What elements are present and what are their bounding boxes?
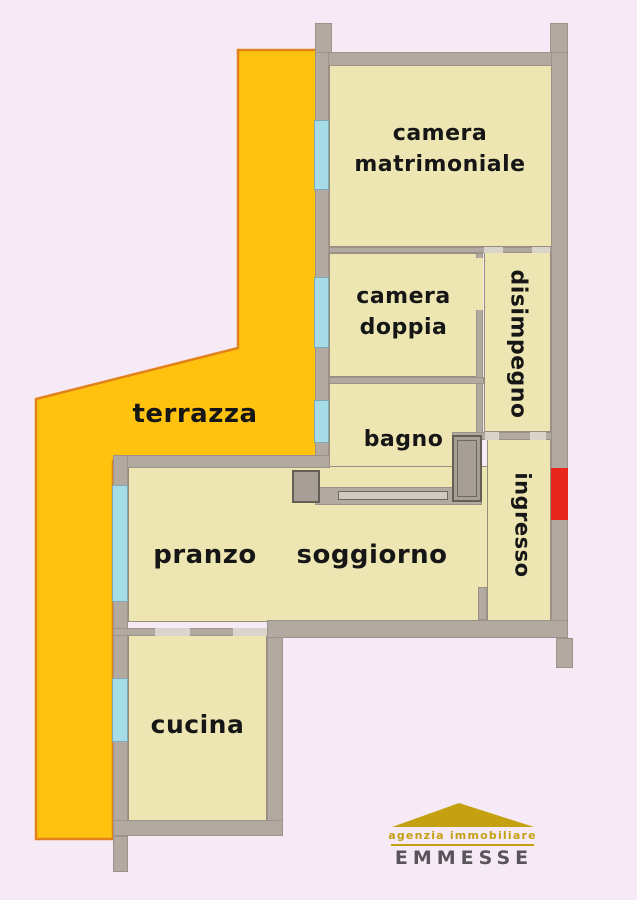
logo-tagline: agenzia immobiliare [385,829,540,842]
door-opening [532,247,550,253]
wall-segment [550,23,568,53]
logo-roof-shape [392,803,534,827]
label-line: matrimoniale [320,149,560,180]
pillar-block [292,470,320,503]
door-opening [485,432,499,440]
window-camera-doppia [314,277,329,348]
label-line: doppia [329,312,478,343]
room-label-cucina: cucina [128,710,267,739]
room-label-camera-doppia: camera doppia [329,281,478,343]
window-bagno [314,400,329,443]
wall-segment [329,247,552,253]
label-line: camera [320,118,560,149]
wall-segment [315,52,568,66]
sliding-door-niche [338,491,448,500]
room-label-pranzo: pranzo [130,540,280,570]
room-label-bagno: bagno [329,424,478,455]
entrance-door-marker [551,468,568,520]
room-label-disimpegno: disimpegno [503,269,534,418]
floor-plan: camera matrimoniale camera doppia disimp… [0,0,637,900]
wall-segment [113,836,128,872]
wall-segment [556,638,573,668]
wall-segment [267,620,568,638]
room-label-camera-matrimoniale: camera matrimoniale [320,118,560,180]
label-line: camera [329,281,478,312]
wall-segment [478,587,487,620]
room-label-ingresso: ingresso [507,472,538,577]
wall-segment [329,377,484,384]
door-opening [233,628,267,636]
door-opening [530,432,546,440]
room-label-terrazza: terrazza [110,399,280,429]
logo-divider-line [391,844,534,846]
wall-segment [113,820,283,836]
wall-segment [267,628,283,836]
room-label-soggiorno: soggiorno [292,540,452,570]
wall-segment [113,455,330,468]
door-opening [155,628,190,636]
logo-roof-icon [390,801,536,829]
window-cucina [112,678,128,742]
door-opening [484,247,503,253]
logo-name: EMMESSE [385,847,543,869]
window-pranzo [112,485,128,602]
